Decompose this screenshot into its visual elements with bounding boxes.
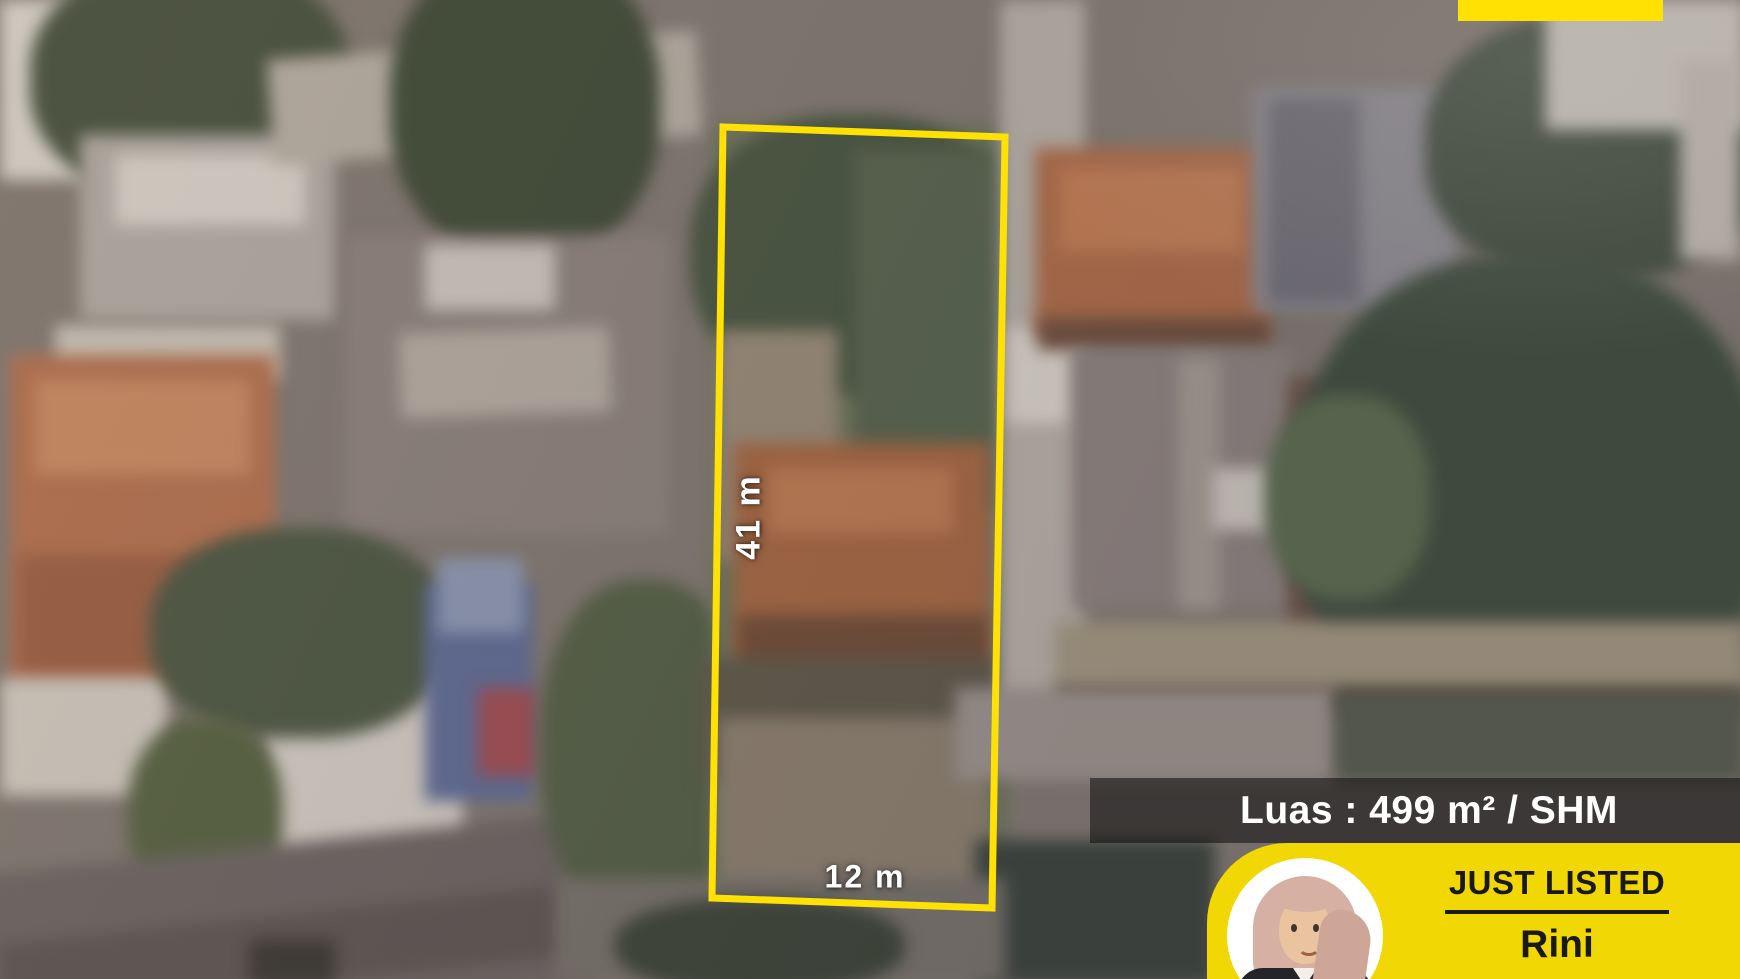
hijab-edge-shape <box>1277 888 1335 912</box>
area-info-band: Luas : 499 m² / SHM <box>1090 778 1740 843</box>
agent-panel: JUST LISTED Rini <box>1207 843 1740 979</box>
status-badge: JUST LISTED <box>1445 864 1669 914</box>
corner-ribbon <box>1458 0 1663 21</box>
left-eye-shape <box>1291 924 1297 932</box>
agent-photo <box>1227 858 1383 979</box>
area-info-text: Luas : 499 m² / SHM <box>1240 789 1618 833</box>
listing-flyer-canvas: 41 m 12 m Luas : 499 m² / SHM JUST LISTE… <box>0 0 1740 979</box>
agent-name: Rini <box>1520 923 1594 967</box>
agent-panel-text: JUST LISTED Rini <box>1392 851 1722 979</box>
plot-width-label: 12 m <box>825 859 906 896</box>
right-eye-shape <box>1313 924 1319 932</box>
plot-depth-label: 41 m <box>730 474 769 560</box>
